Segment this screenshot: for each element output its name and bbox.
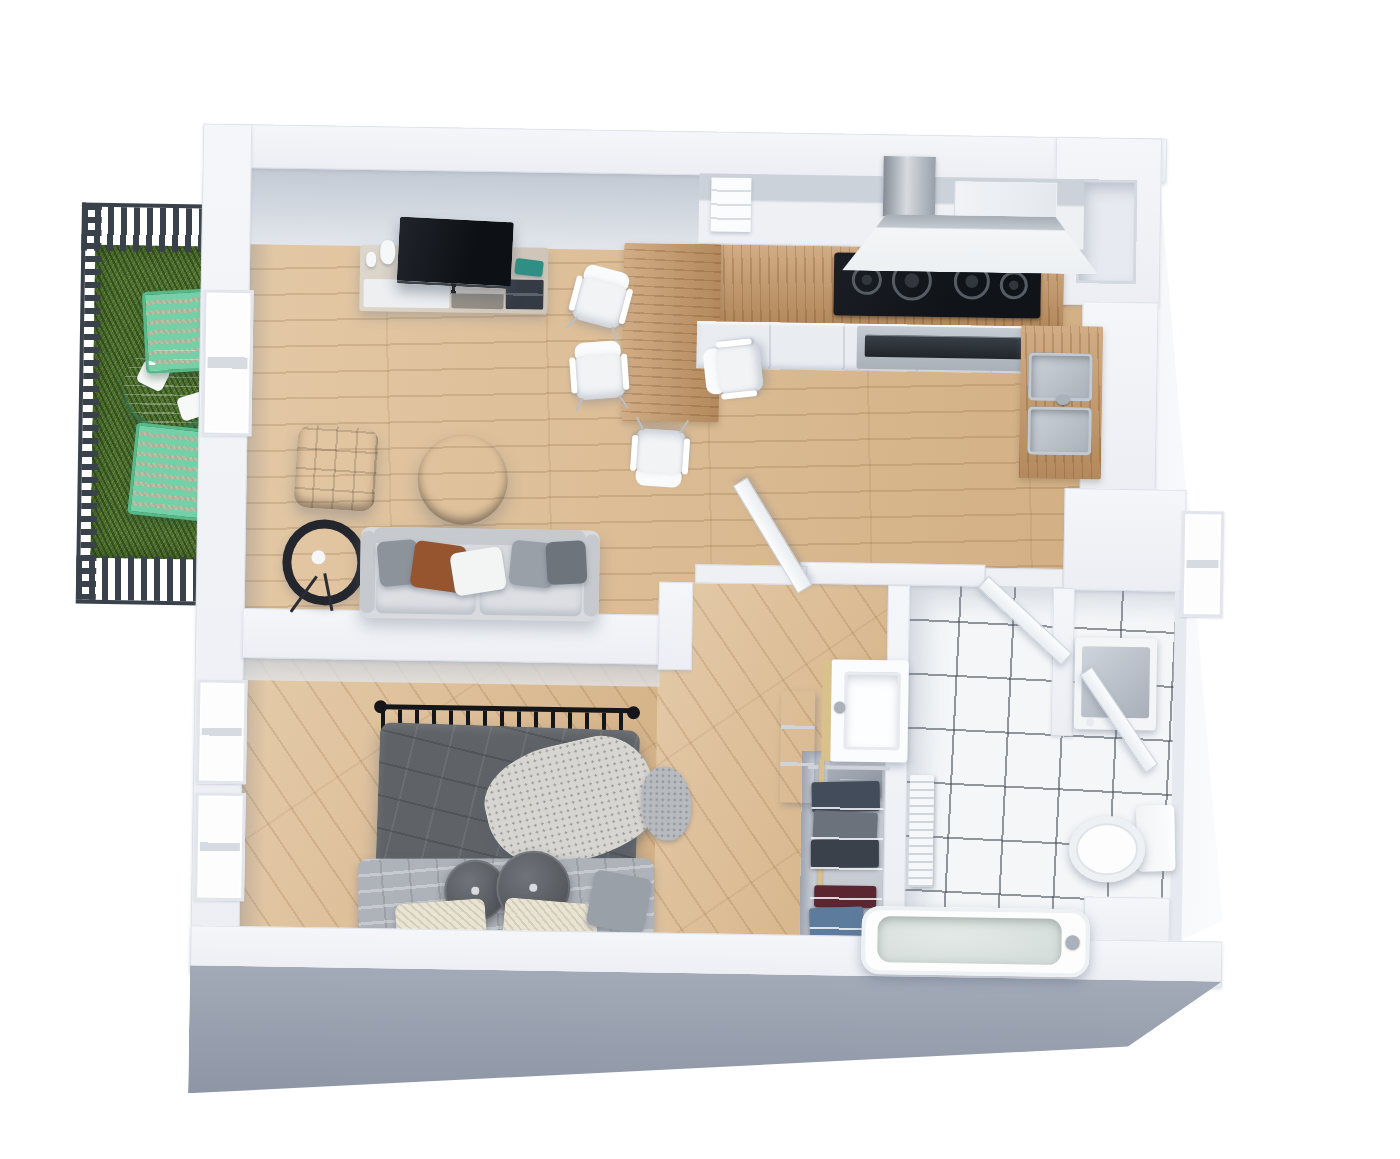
candle [366,252,376,267]
dining-chair [570,340,629,410]
bottom-wall-front-face [188,965,1222,1109]
teal-box [514,258,544,277]
ottoman [293,424,379,512]
bed [355,700,661,947]
console-open-shelf [505,279,543,310]
floor-plan [0,0,1400,1159]
side-pillow [585,869,653,935]
washer-knob [1086,718,1094,726]
pillow-button [471,887,479,895]
hood-chimney [883,156,936,217]
hall-wall-segment [800,562,985,587]
chair-leg [566,317,578,329]
open-shelf [711,177,752,232]
lamp-bulb [311,550,325,564]
dining-chair [631,419,689,489]
chair-leg [636,417,644,431]
kitchen-faucet [1056,395,1070,405]
toilet-bowl [1068,816,1145,883]
headboard-finial [374,700,387,713]
oven-window [865,335,1031,360]
vanity-wood-panel [821,659,832,761]
apartment-floor-plan-scene [0,0,1400,1159]
bedroom-window [194,792,246,901]
chair-seat [715,341,764,395]
bathtub-basin [877,916,1062,965]
throw-pillow [545,540,587,585]
bathtub [861,906,1090,978]
sofa-armrest [360,531,376,613]
toilet [1068,803,1178,893]
dining-chair [702,338,773,399]
chair-seat [634,428,687,475]
chair-leg [679,420,689,434]
headboard-finial [627,706,640,719]
vase [380,240,395,264]
radiator [908,775,934,887]
vanity-basin [844,672,901,751]
dresser [780,691,816,804]
chair-seat [573,353,626,400]
tv [397,217,514,290]
vanity-sink [829,659,909,762]
burner [1000,271,1028,299]
bathroom-window [1181,511,1225,618]
balcony-door [201,289,253,436]
pillow-button [529,883,538,892]
right-wall-corner-block [1063,488,1187,592]
oven [856,326,1039,372]
divider-return-wall [658,582,693,671]
throw-pillow [449,546,507,597]
vanity-faucet [834,701,845,712]
sofa [360,527,600,622]
tv-stand [436,282,470,294]
bedroom-window [196,679,248,784]
bathtub-faucet [1065,935,1079,949]
sink-basin [1027,406,1092,455]
